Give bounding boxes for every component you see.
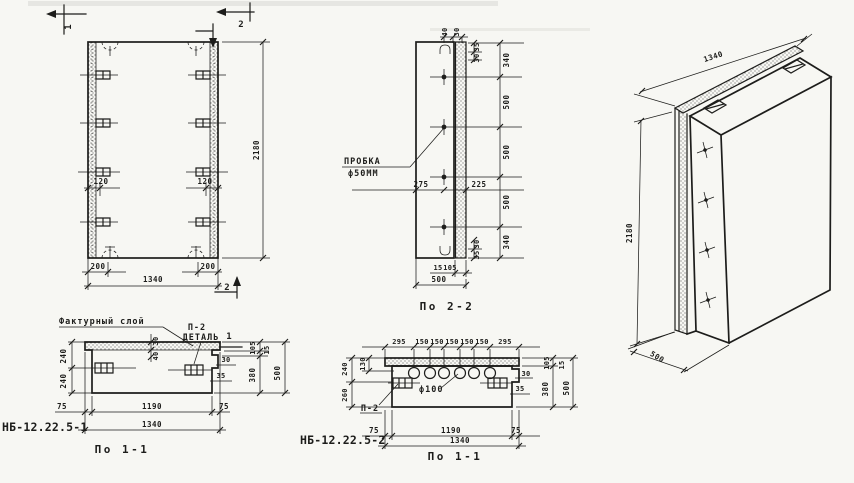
dim-label: 30: [221, 356, 230, 364]
dim-label: 1340: [450, 436, 470, 445]
loop-ticks: [105, 46, 201, 258]
dim-right-lines: [468, 43, 524, 258]
plug-dot: [442, 125, 447, 130]
dim-label: 340: [502, 52, 511, 67]
plug-dot: [704, 198, 708, 202]
dim-label: 30: [473, 53, 481, 62]
dim-label: 150: [475, 338, 489, 346]
plug-dot: [703, 148, 707, 152]
dim-label: 75: [511, 426, 521, 435]
slab-edge-band: [679, 112, 687, 333]
facing-layer: [456, 42, 467, 258]
dim-label: 75: [57, 402, 67, 411]
plug-cross-lines: [697, 142, 716, 308]
dim-label: 380: [248, 367, 257, 382]
dim-label: 240: [59, 348, 68, 363]
detail-label: ДЕТАЛЬ: [183, 333, 220, 343]
dim-label: 380: [541, 381, 550, 396]
dim-label: 40: [441, 27, 449, 36]
scan-noise: [28, 1, 498, 6]
dim-label: 30: [152, 336, 160, 345]
mark-label: 1: [64, 24, 74, 29]
dim-label: 15: [433, 264, 442, 272]
facing-layer: [385, 358, 519, 366]
dim-ticks: [85, 39, 266, 289]
dim-label: 35: [473, 42, 481, 51]
section-2-2-view: ПРОБКА ф50ММ 40 30 35 30 340 500 500 500…: [342, 27, 524, 313]
anchor-boxes: [96, 71, 210, 226]
plug-holes: [409, 368, 496, 379]
section-title: По 1-1: [95, 443, 150, 456]
item-code: НБ-12.22.5-1: [2, 420, 87, 434]
mark-label: 2: [224, 283, 229, 293]
plug-dot: [442, 175, 447, 180]
embedded-plates: [95, 363, 203, 375]
dim-label: 500: [273, 365, 282, 380]
section-1-1-a: Фактурный слой П-2 ДЕТАЛЬ 1 30 40 240 24…: [2, 317, 290, 456]
hole: [425, 368, 436, 379]
section-title: По 2-2: [420, 300, 475, 313]
arrow-icon: [46, 10, 56, 18]
plug-marks: [697, 142, 716, 308]
dim-label: 500: [502, 94, 511, 109]
hole: [469, 368, 480, 379]
dim-label: 105: [543, 356, 551, 370]
dim-label: 295: [392, 338, 406, 346]
holes-leader: [441, 374, 458, 388]
blueprint-sheet: 120 120 2180 200 200 1340 1 2 2: [0, 0, 854, 483]
anchor-axis-lines: [78, 75, 228, 222]
texture-label: Фактурный слой: [59, 317, 145, 327]
plug-label: ПРОБКА: [344, 157, 381, 167]
dim-label: 15: [558, 360, 566, 369]
dim-label: 130: [359, 357, 367, 371]
plug-dot: [706, 298, 710, 302]
dim-bottom-lines: [416, 258, 472, 289]
arrow-icon: [233, 276, 241, 286]
dim-label: 75: [219, 402, 229, 411]
holes-label: ф100: [419, 385, 443, 395]
dim-label: 240: [59, 373, 68, 388]
section-mark-2-bottom: 2: [215, 276, 241, 298]
dim-label: 15: [263, 345, 271, 354]
dim-label: 105: [249, 341, 257, 355]
hole: [455, 368, 466, 379]
dim-label: 150: [445, 338, 459, 346]
section-mark-1: 1: [46, 5, 86, 34]
panel-inner-edges: [96, 42, 210, 258]
dim-label: 225: [471, 180, 486, 189]
plug-label: ф50ММ: [348, 169, 379, 179]
dim-label: 150: [415, 338, 429, 346]
dim-label: 1340: [143, 275, 163, 284]
dim-label: 2180: [252, 140, 261, 160]
dim-label: 500: [431, 275, 446, 284]
dim-height-lines: [630, 112, 675, 346]
dim-label: 40: [152, 351, 160, 360]
mark-label: 2: [238, 20, 243, 30]
dim-label: 200: [200, 262, 215, 271]
dim-height-lines: [222, 42, 270, 258]
hole: [485, 368, 496, 379]
plate-axis-lines: [92, 368, 212, 370]
dim-label: 240: [341, 362, 349, 376]
detail-ref-label: П-2: [361, 404, 379, 414]
dim-label: 120: [93, 177, 108, 186]
dim-label: 500: [502, 194, 511, 209]
plug-dot: [442, 225, 447, 230]
dim-label: 1190: [441, 426, 461, 435]
dim-label: 340: [502, 234, 511, 249]
dim-label: 2180: [625, 223, 634, 243]
front-view: 120 120 2180 200 200 1340 1 2 2: [46, 3, 270, 298]
dim-label: 105: [443, 264, 457, 272]
dim-label: 1340: [702, 49, 724, 64]
panel-drawing: 120 120 2180 200 200 1340 1 2 2: [0, 0, 854, 483]
detail-ref-label: П-2: [188, 323, 206, 333]
detail-mark: 1: [226, 332, 231, 342]
dim-label: 500: [502, 144, 511, 159]
dim-label: 200: [90, 262, 105, 271]
dim-label: 35: [515, 385, 524, 393]
hole: [439, 368, 450, 379]
dim-label: 30: [521, 370, 530, 378]
section-1-1-b: 295 150 150 150 150 150 295 ф100 П-2 240: [300, 338, 578, 463]
corner-loops: [102, 42, 204, 258]
dim-label: 1340: [142, 420, 162, 429]
plug-dot: [705, 248, 709, 252]
section-title: По 1-1: [428, 450, 483, 463]
dim-label: 295: [498, 338, 512, 346]
dim-label: 30: [473, 239, 481, 248]
item-code: НБ-12.22.5-2: [300, 433, 385, 447]
dim-label: 500: [562, 380, 571, 395]
dim-label: 1190: [142, 402, 162, 411]
edge-anchors: [78, 71, 228, 226]
dim-label: 120: [197, 177, 212, 186]
dim-label: 275: [413, 180, 428, 189]
plug-dot: [442, 75, 447, 80]
dim-label: 260: [341, 388, 349, 402]
hole: [409, 368, 420, 379]
body-outline: [416, 42, 454, 258]
dim-label: 35: [216, 372, 225, 380]
slab-top-band: [675, 46, 803, 113]
iso-view: 1340 2180 500: [625, 34, 831, 373]
